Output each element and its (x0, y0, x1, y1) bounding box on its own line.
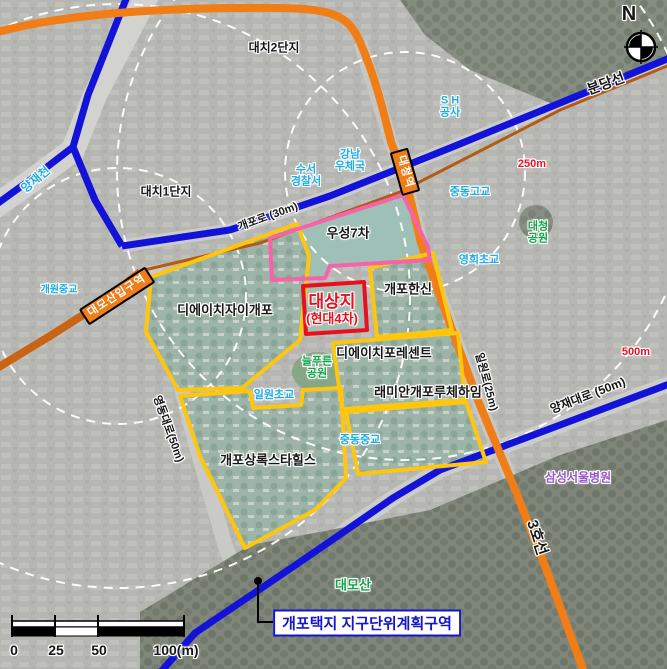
jungdong-mid-label: 중동중교 (340, 434, 380, 446)
gaewon-mid-label: 개원중교 (41, 284, 78, 295)
marker-250m: 250m (518, 158, 546, 170)
dh-xi-gaepo-label: 디에이치자이개포 (177, 304, 273, 319)
daecheong-park-line1: 대청 (528, 221, 548, 233)
sangnok-label: 개포상록스타힐스 (220, 454, 316, 469)
neulpureun-line2: 공원 (302, 368, 332, 380)
target-site-title: 대상지 (306, 292, 358, 312)
scale-tick-0: 0 (10, 643, 18, 659)
satellite-planning-map: N 분당선 대치2단지 대치1단지 양재천 수서 경찰서 강남 우체국 S H … (0, 0, 667, 669)
suseo-police-label: 수서 경찰서 (291, 164, 321, 189)
target-site-subtitle: (현대4차) (306, 311, 358, 326)
sh-corp-line2: 공사 (440, 107, 460, 119)
sh-corp-line1: S H (440, 95, 460, 107)
neulpureun-line1: 늘푸른 (302, 356, 332, 368)
gangnam-post-label: 강남 우체국 (335, 149, 365, 174)
jungdong-high-label: 중동고교 (450, 186, 490, 198)
daecheong-park-label: 대청 공원 (528, 221, 548, 246)
yeonghui-elem-label: 영희초교 (459, 254, 499, 266)
scale-tick-50: 50 (91, 643, 107, 659)
raemian-label: 래미안개포루체하임 (374, 386, 482, 401)
suseo-police-line2: 경찰서 (291, 176, 321, 188)
daecheong-park-line2: 공원 (528, 233, 548, 245)
north-label: N (622, 3, 636, 25)
suseo-police-line1: 수서 (291, 164, 321, 176)
daechi2-label: 대치2단지 (249, 41, 300, 54)
gangnam-post-line1: 강남 (335, 149, 365, 161)
target-site-label: 대상지 (현대4차) (306, 292, 358, 326)
dh-forecent-label: 디에이치포레센트 (336, 347, 432, 362)
district-boundary-label: 개포택지 지구단위계획구역 (273, 610, 461, 637)
gaepo-hanshin-label: 개포한신 (384, 283, 432, 298)
scale-tick-100: 100(m) (153, 643, 198, 659)
map-graphics-layer (0, 0, 667, 669)
neulpureun-park-label: 늘푸른 공원 (302, 356, 332, 381)
gangnam-post-line2: 우체국 (335, 161, 365, 173)
marker-500m: 500m (622, 346, 650, 358)
ilwon-elem-label: 일원초교 (254, 389, 294, 401)
scale-tick-25: 25 (48, 643, 64, 659)
daemosan-label: 대모산 (335, 579, 371, 594)
sh-corp-label: S H 공사 (440, 95, 460, 120)
compass-icon (622, 28, 660, 66)
samsung-hospital-label: 삼성서울병원 (545, 471, 611, 484)
daechi1-label: 대치1단지 (141, 185, 192, 198)
wooseong7-label: 우성7차 (326, 227, 369, 242)
